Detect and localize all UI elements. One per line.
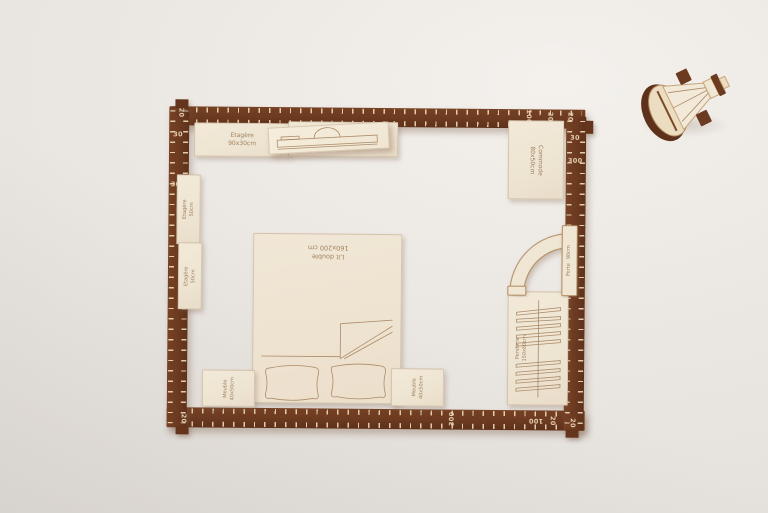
ruler-bottom	[167, 407, 585, 431]
ruler-number: 20	[549, 416, 556, 426]
ruler-number: 20	[569, 418, 576, 428]
piece-label: Penderie150x60cm	[515, 335, 528, 362]
pillows-and-blanket-engraving-icon	[253, 234, 401, 403]
cabinet-piece-left: Meuble40x50cm	[202, 369, 255, 406]
sofa-profile-engraving-icon	[269, 122, 389, 153]
photo-background: 20 30 300 100 20 20 30 300 300 100 20 20…	[0, 0, 768, 513]
door-piece: Porte90cm	[506, 223, 581, 298]
cabinet-piece-right: Meuble40x50cm	[391, 368, 444, 406]
piece-label: Etagère50cm	[183, 266, 196, 286]
commode-piece: Commode80x50cm	[508, 120, 565, 199]
ruler-number: 100	[529, 417, 544, 424]
piece-label: Etagère50cm	[182, 200, 195, 220]
ruler-number: 30	[173, 131, 183, 138]
ruler-number: 300	[449, 412, 456, 427]
piece-label: Etagère90x30cm	[228, 132, 256, 148]
ruler-number: 20	[567, 112, 574, 122]
ruler-number: 300	[568, 158, 583, 165]
piece-label: Meuble40x50cm	[411, 376, 424, 399]
wall-strip-top: Etagère50cm	[176, 174, 201, 244]
piece-label: Meuble40x50cm	[222, 376, 235, 399]
ruler-number: 20	[178, 108, 185, 118]
corner-tab-bottom-right	[566, 430, 579, 438]
wooden-figurine-icon	[633, 48, 741, 144]
corner-tab-top-right	[585, 121, 593, 134]
wall-strip-bottom: Etagère50cm	[178, 242, 203, 309]
room-planner-frame: 20 30 300 100 20 20 30 300 300 100 20 20…	[167, 104, 588, 432]
piece-label: Porte90cm	[566, 243, 573, 278]
ruler-number: 20	[180, 414, 187, 424]
ruler-number: 30	[570, 135, 580, 142]
piece-label: Commode80x50cm	[528, 144, 544, 175]
wardrobe-piece: Penderie150x60cm	[507, 291, 569, 406]
bed-piece: Lit double160x200 cm	[252, 233, 402, 404]
corner-tab-bottom-left	[176, 426, 189, 434]
